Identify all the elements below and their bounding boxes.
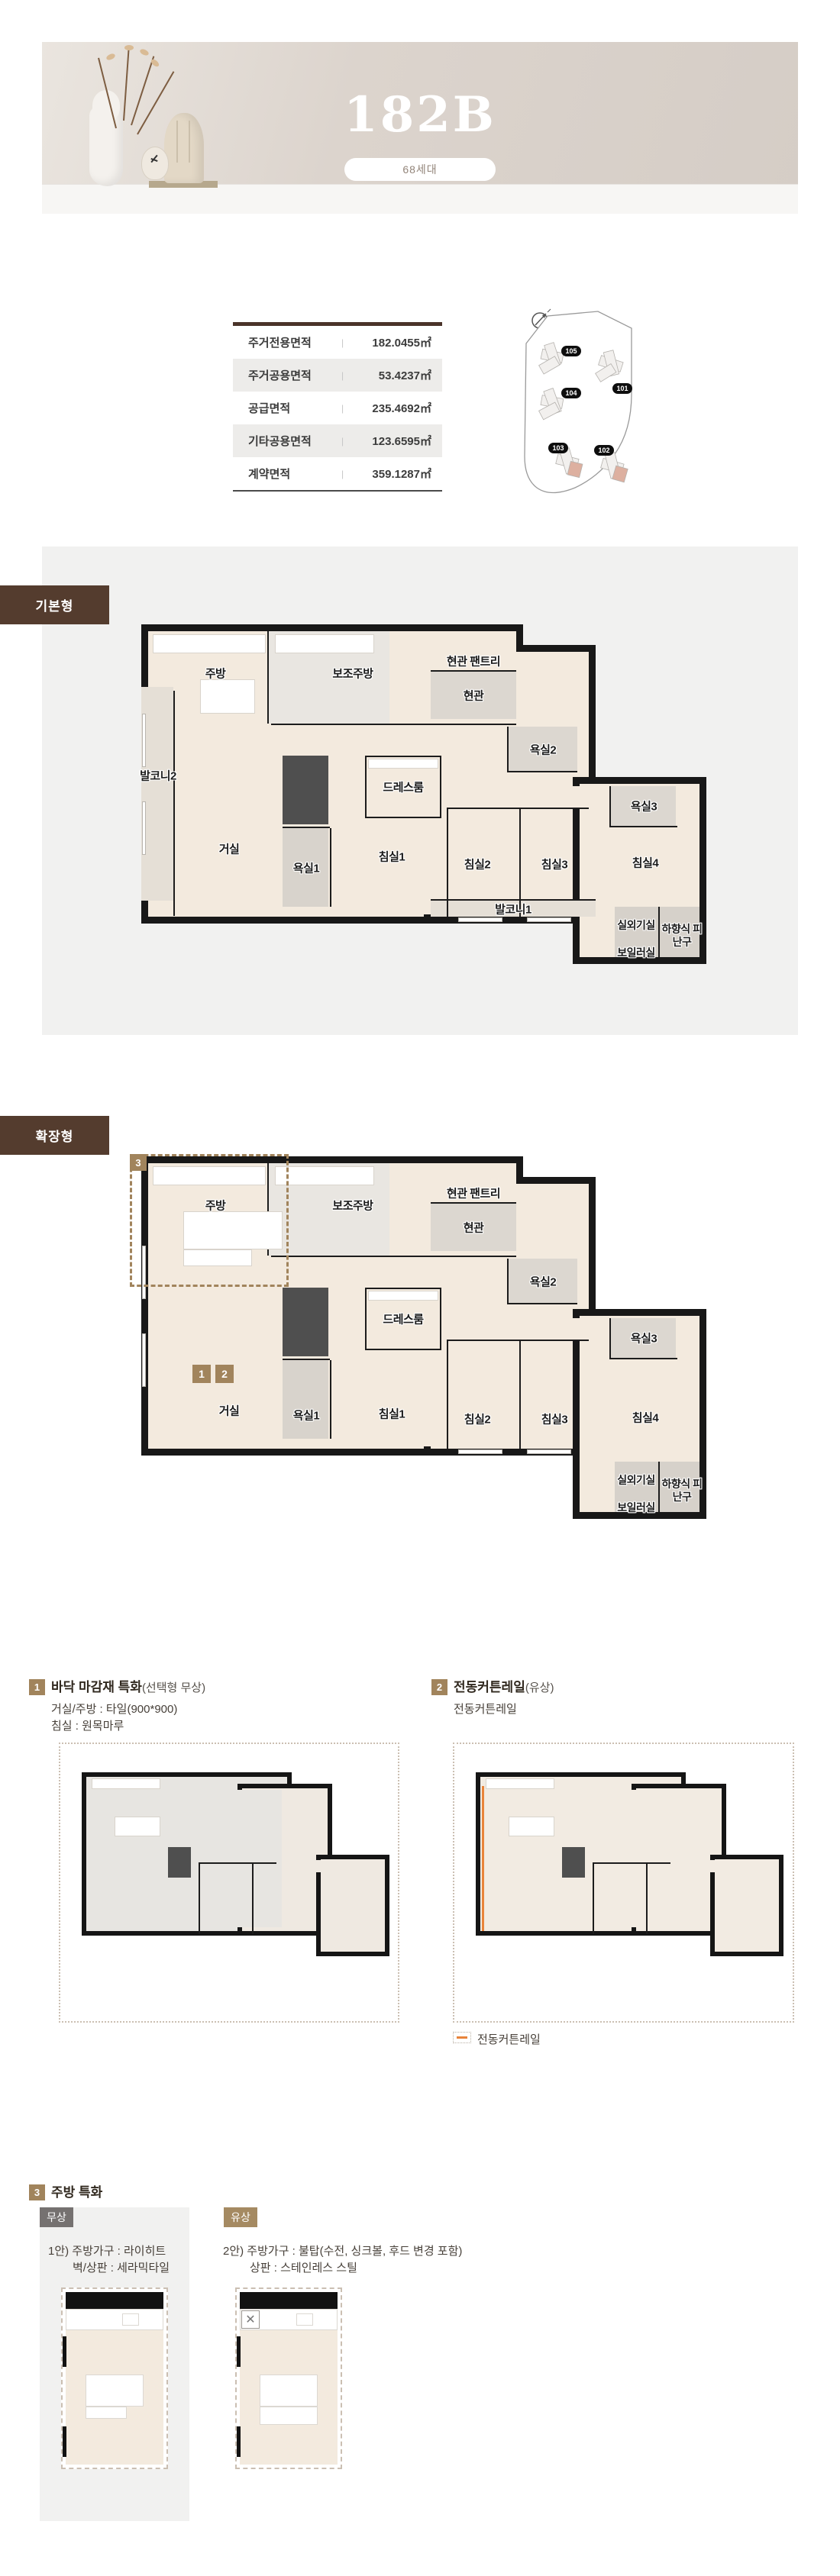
row-label: 주거전용면적 bbox=[248, 334, 334, 350]
feature2-number-badge: 2 bbox=[431, 1679, 447, 1695]
room-label-bed1: 침실1 bbox=[379, 1406, 405, 1422]
hero-banner: 182B 68세대 bbox=[42, 42, 798, 214]
free-option-badge: 무상 bbox=[40, 2207, 73, 2227]
room-label-bed4: 침실4 bbox=[632, 855, 658, 871]
room-label-bath1: 욕실1 bbox=[293, 1407, 319, 1423]
building-badge-104: 104 bbox=[561, 388, 581, 398]
room-label-boiler: 보일러실 bbox=[617, 945, 655, 960]
table-row: 계약면적 | 359.1287㎡ bbox=[233, 457, 442, 490]
room-label-escape-hatch: 하향식 피난구 bbox=[658, 923, 706, 949]
kitchen-paid-line2: 상판 : 스테인레스 스틸 bbox=[250, 2259, 357, 2275]
feature1-line1: 거실/주방 : 타일(900*900) bbox=[51, 1701, 177, 1717]
feature3-header: 3 주방 특화 bbox=[29, 2184, 102, 2200]
room-label-kitchen: 주방 bbox=[205, 666, 226, 682]
room-label-balcony1: 발코니1 bbox=[495, 901, 531, 917]
kitchen-free-line1: 1안) 주방가구 : 라이히트 bbox=[48, 2242, 166, 2258]
svg-text:104: 104 bbox=[565, 389, 577, 397]
room-label-bed1: 침실1 bbox=[379, 849, 405, 865]
brochure-page: 182B 68세대 주거전용면적 | 182.0455㎡ 주거공용면적 | 53… bbox=[0, 0, 840, 2576]
curtain-rail-legend-icon bbox=[453, 2032, 471, 2043]
room-label-balcony2: 발코니2 bbox=[140, 768, 176, 784]
room-label-bed3: 침실3 bbox=[541, 856, 567, 872]
household-count-badge: 68세대 bbox=[344, 158, 496, 181]
room-label-outdoor-unit: 실외기실 bbox=[617, 1472, 655, 1488]
feature2-line1: 전동커튼레일 bbox=[454, 1701, 517, 1717]
basic-type-tab: 기본형 bbox=[0, 585, 109, 624]
room-label-bath3: 욕실3 bbox=[631, 798, 657, 814]
area-summary-table: 주거전용면적 | 182.0455㎡ 주거공용면적 | 53.4237㎡ 공급면… bbox=[233, 322, 442, 492]
row-label: 계약면적 bbox=[248, 466, 334, 482]
table-row: 공급면적 | 235.4692㎡ bbox=[233, 392, 442, 424]
feature2-header: 2 전동커튼레일(유상) bbox=[431, 1679, 554, 1696]
room-label-entry: 현관 bbox=[464, 688, 484, 704]
svg-text:101: 101 bbox=[616, 385, 628, 392]
feature2-title: 전동커튼레일(유상) bbox=[454, 1679, 554, 1696]
room-label-dressroom: 드레스룸 bbox=[383, 1311, 423, 1327]
feature1-number-badge: 1 bbox=[29, 1679, 45, 1695]
room-label-boiler: 보일러실 bbox=[617, 1500, 655, 1515]
divider: | bbox=[341, 469, 344, 479]
paid-option-badge: 유상 bbox=[224, 2207, 257, 2227]
table-row: 주거공용면적 | 53.4237㎡ bbox=[233, 359, 442, 392]
unit-type-title: 182B bbox=[42, 86, 798, 143]
site-location-map: 105 101 104 103 102 bbox=[515, 304, 649, 501]
room-label-entry: 현관 bbox=[464, 1220, 484, 1236]
row-label: 주거공용면적 bbox=[248, 367, 334, 383]
room-label-living: 거실 bbox=[219, 841, 240, 857]
divider: | bbox=[341, 436, 344, 447]
svg-text:105: 105 bbox=[565, 347, 577, 355]
row-label: 기타공용면적 bbox=[248, 433, 334, 449]
room-label-entry-pantry: 현관 팬트리 bbox=[447, 653, 500, 669]
room-label-bed3: 침실3 bbox=[541, 1411, 567, 1427]
room-label-bath2: 욕실2 bbox=[530, 1274, 556, 1290]
room-label-bath3: 욕실3 bbox=[631, 1330, 657, 1346]
svg-text:102: 102 bbox=[598, 447, 609, 454]
room-label-aux-kitchen: 보조주방 bbox=[332, 1198, 373, 1214]
room-label-entry-pantry: 현관 팬트리 bbox=[447, 1185, 500, 1201]
row-value: 53.4237㎡ bbox=[351, 367, 431, 383]
feature-marker-1: 1 bbox=[192, 1365, 211, 1383]
row-value: 182.0455㎡ bbox=[351, 334, 431, 350]
building-badge-105: 105 bbox=[561, 346, 581, 356]
room-label-aux-kitchen: 보조주방 bbox=[332, 666, 373, 682]
room-label-dressroom: 드레스룸 bbox=[383, 779, 423, 795]
feature1-line2: 침실 : 원목마루 bbox=[51, 1717, 124, 1733]
clock-decor bbox=[141, 147, 169, 180]
row-value: 359.1287㎡ bbox=[351, 466, 431, 482]
room-label-outdoor-unit: 실외기실 bbox=[617, 917, 655, 933]
room-label-bed2: 침실2 bbox=[464, 1411, 490, 1427]
site-map-svg: 105 101 104 103 102 bbox=[515, 304, 649, 501]
table-row: 주거전용면적 | 182.0455㎡ bbox=[233, 326, 442, 359]
svg-text:103: 103 bbox=[552, 444, 564, 452]
room-label-bath2: 욕실2 bbox=[530, 742, 556, 758]
table-row: 기타공용면적 | 123.6595㎡ bbox=[233, 424, 442, 457]
room-label-bath1: 욕실1 bbox=[293, 860, 319, 876]
building-badge-101: 101 bbox=[612, 383, 632, 394]
hero-table-surface bbox=[42, 184, 798, 214]
feature3-number-badge: 3 bbox=[29, 2184, 45, 2200]
divider: | bbox=[341, 370, 344, 381]
changed-fixture-mark: ✕ bbox=[241, 2310, 260, 2329]
feature-marker-3: 3 bbox=[130, 1154, 147, 1171]
feature1-title-suffix: (선택형 무상) bbox=[142, 1681, 205, 1694]
kitchen-paid-plan: ✕ bbox=[235, 2287, 342, 2469]
kitchen-free-line2: 벽/상판 : 세라믹타일 bbox=[73, 2259, 170, 2275]
divider: | bbox=[341, 403, 344, 414]
feature1-title: 바닥 마감재 특화(선택형 무상) bbox=[51, 1679, 205, 1696]
room-label-escape-hatch: 하향식 피난구 bbox=[658, 1478, 706, 1504]
divider: | bbox=[341, 337, 344, 348]
kitchen-paid-line1: 2안) 주방가구 : 불탑(수전, 싱크볼, 후드 변경 포함) bbox=[223, 2242, 462, 2258]
room-label-bed2: 침실2 bbox=[464, 856, 490, 872]
kitchen-free-plan bbox=[61, 2287, 168, 2469]
expansion-zone-outline bbox=[130, 1154, 289, 1287]
row-value: 123.6595㎡ bbox=[351, 433, 431, 449]
feature1-header: 1 바닥 마감재 특화(선택형 무상) bbox=[29, 1679, 205, 1696]
building-badge-103: 103 bbox=[548, 443, 568, 453]
curtain-rail-line bbox=[482, 1786, 484, 1931]
room-label-living: 거실 bbox=[219, 1403, 240, 1419]
row-value: 235.4692㎡ bbox=[351, 400, 431, 416]
curtain-rail-legend-label: 전동커튼레일 bbox=[477, 2031, 541, 2047]
extended-type-tab: 확장형 bbox=[0, 1116, 109, 1155]
feature-marker-2: 2 bbox=[215, 1365, 234, 1383]
feature2-title-suffix: (유상) bbox=[525, 1681, 554, 1694]
building-badge-102: 102 bbox=[594, 445, 614, 456]
room-label-bed4: 침실4 bbox=[632, 1410, 658, 1426]
row-label: 공급면적 bbox=[248, 400, 334, 416]
room-label-kitchen: 주방 bbox=[205, 1198, 226, 1214]
feature3-title: 주방 특화 bbox=[51, 2184, 102, 2200]
